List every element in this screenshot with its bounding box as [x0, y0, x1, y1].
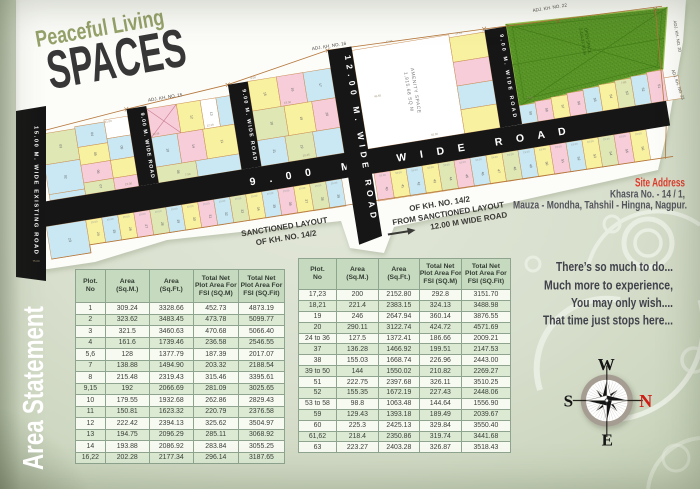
- svg-text:58: 58: [544, 108, 549, 112]
- svg-text:22: 22: [299, 144, 304, 148]
- svg-text:30: 30: [192, 217, 197, 221]
- svg-text:43: 43: [432, 179, 437, 183]
- svg-text:Much more to experience,: Much more to experience,: [544, 278, 673, 293]
- svg-text:12: 12: [189, 115, 194, 119]
- svg-text:45: 45: [464, 174, 469, 178]
- svg-text:39: 39: [336, 194, 341, 198]
- svg-text:14: 14: [191, 144, 196, 148]
- svg-text:42: 42: [416, 181, 421, 185]
- svg-text:47: 47: [496, 169, 501, 173]
- svg-text:17: 17: [318, 83, 323, 87]
- svg-text:15.00 M. WIDE EXISTING ROA: 15.00 M. WIDE EXISTING ROAD: [33, 126, 39, 254]
- svg-text:52: 52: [641, 87, 646, 91]
- svg-text:29: 29: [176, 219, 181, 223]
- svg-text:19: 19: [299, 116, 304, 120]
- svg-text:There’s so much to do...: There’s so much to do...: [556, 259, 673, 274]
- svg-text:38: 38: [320, 197, 325, 201]
- svg-text:23: 23: [67, 238, 72, 243]
- svg-text:54: 54: [608, 151, 613, 155]
- svg-text:28: 28: [160, 222, 165, 226]
- svg-text:10: 10: [165, 148, 170, 152]
- svg-text:56: 56: [576, 101, 581, 105]
- svg-text:Mauza - Mondha, Tahshil - Hing: Mauza - Mondha, Tahshil - Hingna, Nagpur…: [513, 200, 687, 212]
- svg-text:21: 21: [272, 149, 277, 153]
- svg-text:08: 08: [176, 170, 181, 174]
- svg-text:Site Address: Site Address: [635, 177, 685, 189]
- svg-text:55: 55: [593, 98, 598, 102]
- svg-text:52: 52: [576, 156, 581, 160]
- svg-text:56: 56: [640, 146, 645, 150]
- svg-text:57: 57: [560, 104, 565, 108]
- svg-text:48: 48: [512, 166, 517, 170]
- svg-text:26: 26: [128, 227, 133, 231]
- svg-text:41: 41: [400, 184, 405, 188]
- svg-text:31: 31: [208, 214, 213, 218]
- svg-text:36: 36: [288, 202, 293, 206]
- svg-text:37: 37: [304, 199, 309, 203]
- svg-text:16: 16: [290, 87, 295, 91]
- svg-text:E: E: [602, 431, 613, 450]
- svg-text:S: S: [564, 392, 573, 411]
- svg-text:55: 55: [624, 149, 629, 153]
- svg-text:49: 49: [528, 164, 533, 168]
- svg-text:35: 35: [272, 204, 277, 208]
- svg-text:51: 51: [560, 159, 565, 163]
- svg-text:59: 59: [528, 111, 533, 115]
- svg-text:15: 15: [263, 92, 268, 96]
- svg-text:53: 53: [625, 91, 630, 95]
- svg-text:53: 53: [592, 154, 597, 158]
- svg-text:04: 04: [90, 132, 95, 136]
- svg-text:46: 46: [480, 171, 485, 175]
- svg-text:40: 40: [384, 186, 389, 190]
- svg-text:05: 05: [93, 152, 98, 156]
- svg-text:54: 54: [609, 94, 614, 98]
- svg-text:W: W: [598, 355, 615, 374]
- svg-text:24: 24: [96, 232, 101, 236]
- svg-text:09: 09: [119, 145, 124, 149]
- svg-text:33: 33: [240, 209, 245, 213]
- svg-text:13: 13: [209, 112, 214, 116]
- svg-text:51: 51: [657, 84, 662, 88]
- svg-text:You may only wish....: You may only wish....: [571, 295, 673, 310]
- svg-text:27: 27: [144, 224, 149, 228]
- svg-text:34: 34: [256, 207, 261, 211]
- svg-text:02: 02: [63, 175, 68, 179]
- svg-text:18: 18: [269, 121, 274, 125]
- svg-text:07: 07: [98, 184, 103, 188]
- svg-text:25: 25: [112, 229, 117, 233]
- svg-text:That time just stops here...: That time just stops here...: [543, 313, 673, 328]
- svg-text:Area Statement: Area Statement: [18, 306, 50, 470]
- svg-text:44: 44: [448, 176, 453, 180]
- svg-text:11: 11: [220, 139, 225, 143]
- svg-text:N: N: [639, 391, 652, 411]
- svg-text:32: 32: [224, 212, 229, 216]
- svg-text:75.00: 75.00: [33, 259, 40, 263]
- svg-text:50: 50: [544, 161, 549, 165]
- svg-text:20: 20: [325, 112, 330, 116]
- svg-text:06: 06: [96, 169, 101, 173]
- svg-text:03: 03: [58, 144, 63, 148]
